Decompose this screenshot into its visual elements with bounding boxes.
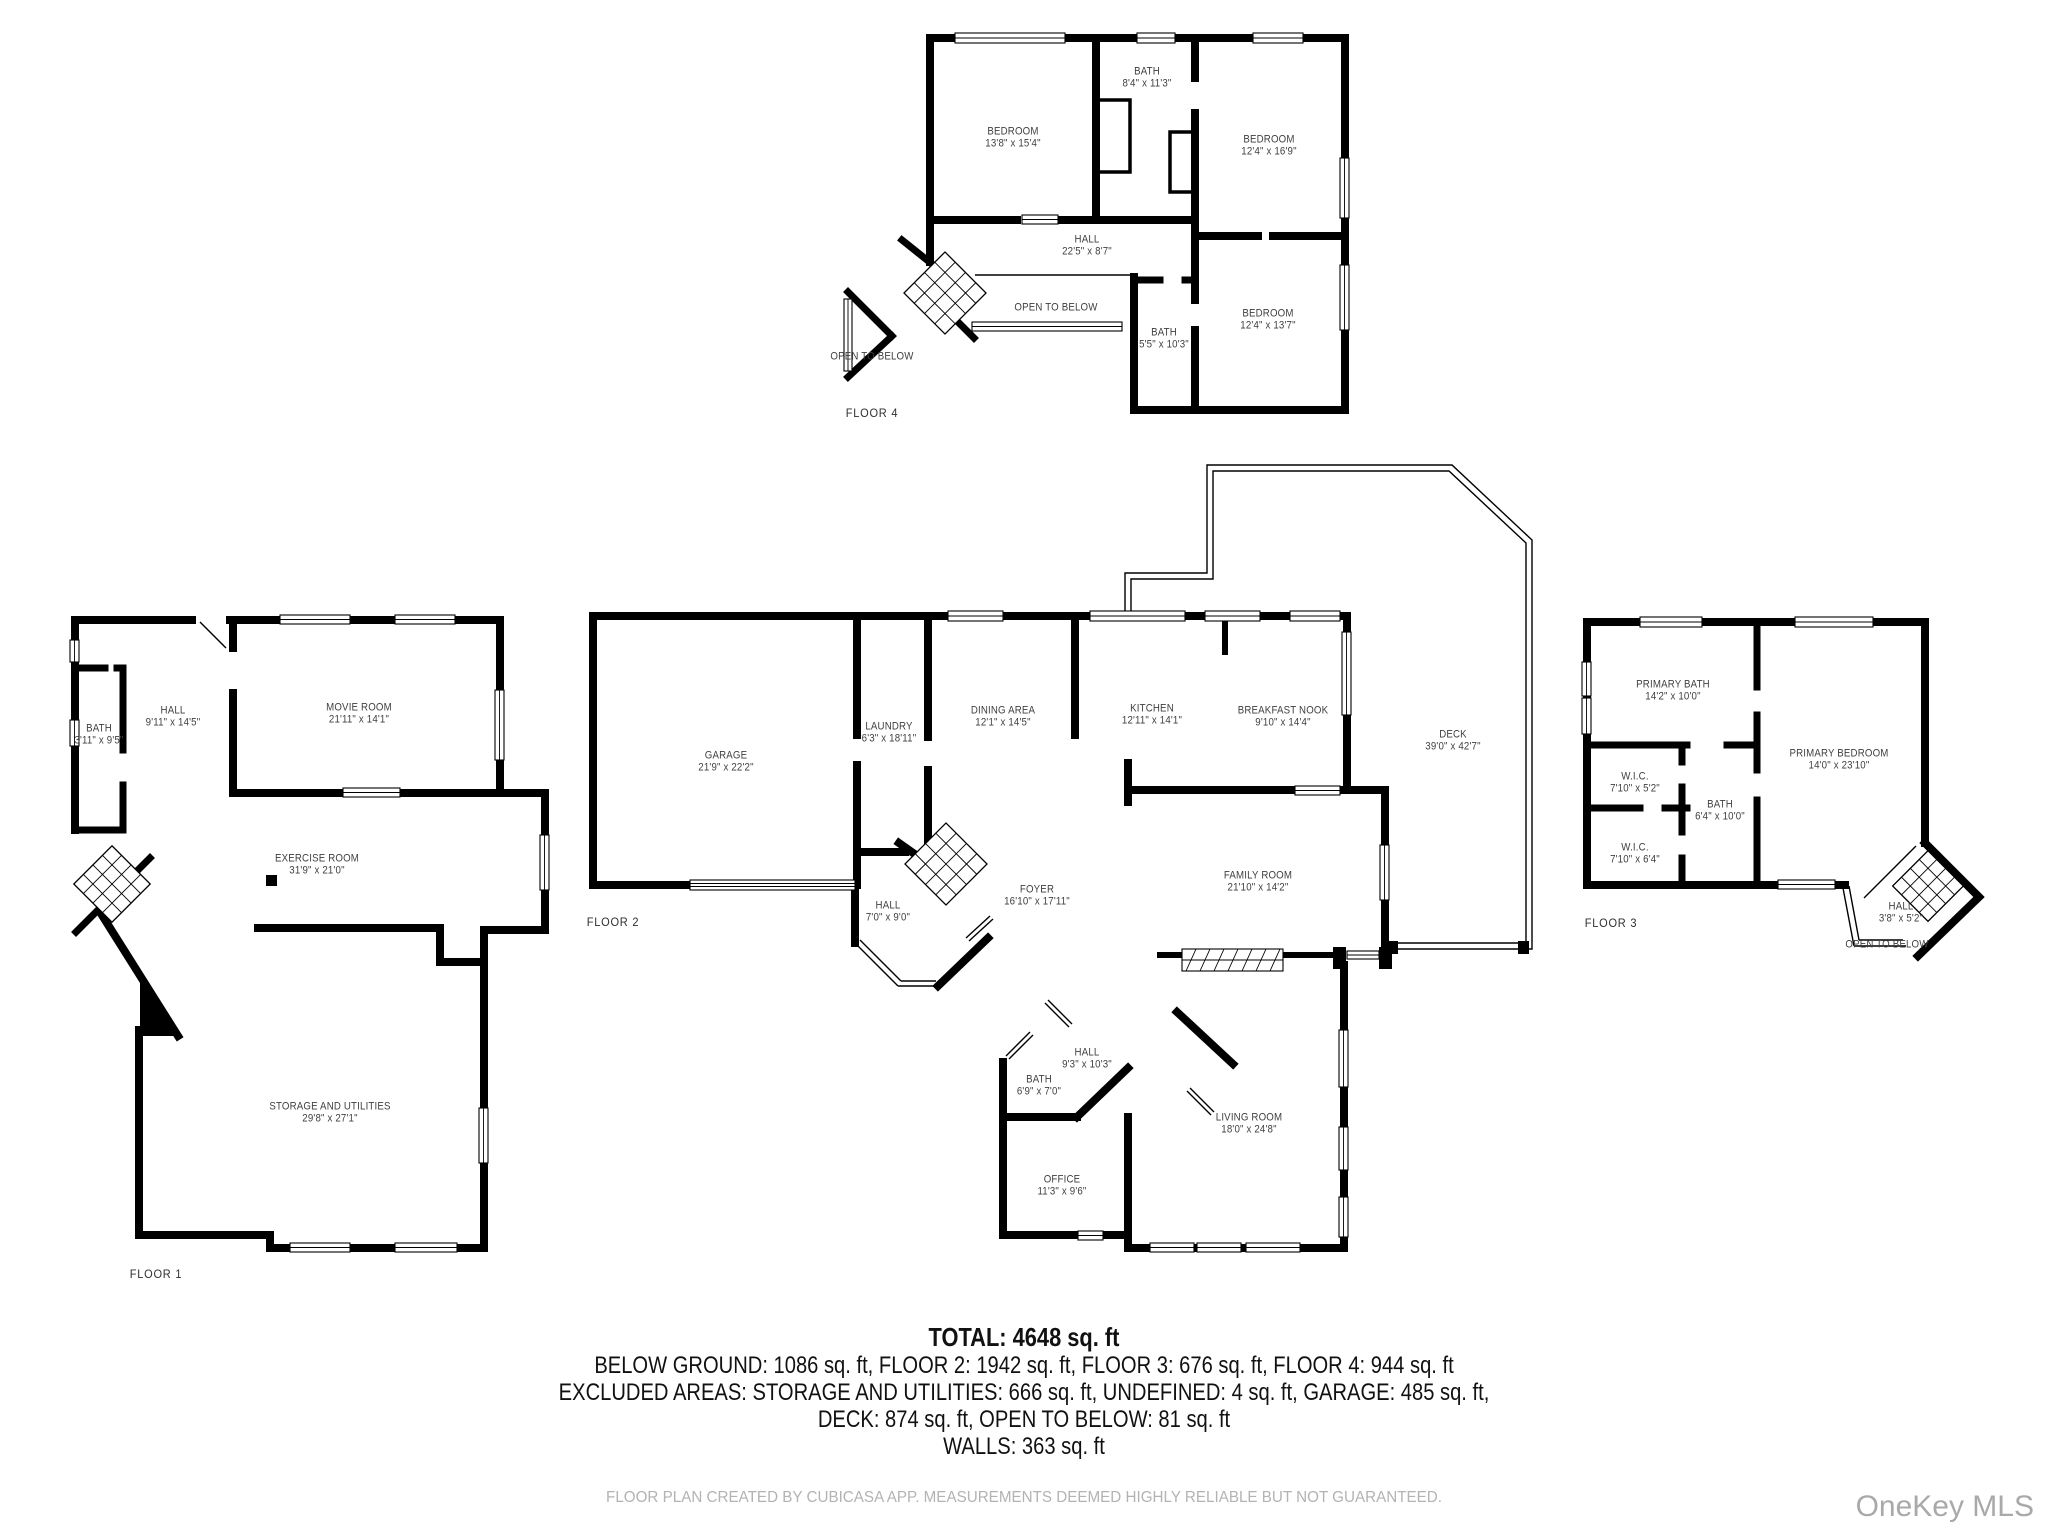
floor2-walls [593,465,1532,1252]
room-name: LAUNDRY [862,722,917,734]
room-label-office: OFFICE11'3" x 9'6" [1037,1175,1086,1198]
room-dims: 12'1" x 14'5" [971,717,1035,729]
room-dims: 18'0" x 24'8" [1216,1124,1282,1136]
room-name: FAMILY ROOM [1224,871,1292,883]
room-name: MOVIE ROOM [326,703,392,715]
room-name: HALL [1879,902,1923,914]
room-label-bath-f1: BATH3'11" x 9'5" [74,724,123,747]
room-label-bedroom-3: BEDROOM12'4" x 13'7" [1240,309,1295,332]
room-label-laundry: LAUNDRY6'3" x 18'11" [862,722,917,745]
room-name: BEDROOM [1241,135,1296,147]
floor-plan-drawing [0,0,2048,1536]
room-dims: 8'4" x 11'3" [1122,78,1171,90]
summary-line-walls: WALLS: 363 sq. ft [164,1433,1884,1460]
room-label-wic-2: W.I.C.7'10" x 6'4" [1610,843,1660,866]
room-name: BATH [1122,67,1171,79]
room-name: HALL [146,706,201,718]
room-name: KITCHEN [1122,704,1182,716]
room-name: BEDROOM [1240,309,1295,321]
room-name: LIVING ROOM [1216,1113,1282,1125]
room-dims: 7'10" x 6'4" [1610,854,1660,866]
room-name: PRIMARY BEDROOM [1789,749,1888,761]
room-label-garage: GARAGE21'9" x 22'2" [698,751,753,774]
room-name: BREAKFAST NOOK [1238,706,1329,718]
room-label-deck: DECK39'0" x 42'7" [1425,730,1480,753]
room-label-primary-bedroom: PRIMARY BEDROOM14'0" x 23'10" [1789,749,1888,772]
room-dims: 6'4" x 10'0" [1695,811,1745,823]
summary-line-deck: DECK: 874 sq. ft, OPEN TO BELOW: 81 sq. … [164,1406,1884,1433]
room-label-hall-f2b: HALL9'3" x 10'3" [1062,1048,1112,1071]
room-label-hall-f4: HALL22'5" x 8'7" [1062,235,1112,258]
area-summary: TOTAL: 4648 sq. ft BELOW GROUND: 1086 sq… [0,1322,2048,1460]
room-dims: 6'3" x 18'11" [862,733,917,745]
floor1-caption: FLOOR 1 [130,1267,182,1281]
room-label-hall-f3: HALL3'8" x 5'2" [1879,902,1923,925]
room-label-open-to-below-f3: OPEN TO BELOW [1845,939,1928,951]
room-name: PRIMARY BATH [1636,680,1710,692]
room-name: OPEN TO BELOW [1014,302,1097,314]
room-name: HALL [866,901,910,913]
summary-line-excluded: EXCLUDED AREAS: STORAGE AND UTILITIES: 6… [164,1379,1884,1406]
room-dims: 5'5" x 10'3" [1139,339,1189,351]
room-name: OPEN TO BELOW [1845,939,1928,951]
room-label-foyer: FOYER16'10" x 17'11" [1004,885,1070,908]
room-name: W.I.C. [1610,772,1660,784]
room-dims: 29'8" x 27'1" [269,1113,390,1125]
room-dims: 9'10" x 14'4" [1238,717,1329,729]
room-label-family-room: FAMILY ROOM21'10" x 14'2" [1224,871,1292,894]
room-dims: 39'0" x 42'7" [1425,741,1480,753]
room-label-bedroom-1: BEDROOM13'8" x 15'4" [985,127,1040,150]
floor-plan-sheet: BATH3'11" x 9'5" HALL9'11" x 14'5" MOVIE… [0,0,2048,1536]
room-name: HALL [1062,1048,1112,1060]
room-label-hall-f2a: HALL7'0" x 9'0" [866,901,910,924]
room-dims: 21'11" x 14'1" [326,714,392,726]
room-name: FOYER [1004,885,1070,897]
room-label-open-to-below-f4b: OPEN TO BELOW [830,351,913,363]
room-name: BATH [1139,328,1189,340]
room-dims: 22'5" x 8'7" [1062,246,1112,258]
room-label-breakfast-nook: BREAKFAST NOOK9'10" x 14'4" [1238,706,1329,729]
summary-line-floors: BELOW GROUND: 1086 sq. ft, FLOOR 2: 1942… [164,1352,1884,1379]
room-dims: 3'8" x 5'2" [1879,913,1923,925]
room-label-kitchen: KITCHEN12'11" x 14'1" [1122,704,1182,727]
room-dims: 14'2" x 10'0" [1636,691,1710,703]
room-name: OPEN TO BELOW [830,351,913,363]
room-label-bath-f4a: BATH8'4" x 11'3" [1122,67,1171,90]
room-name: STORAGE AND UTILITIES [269,1102,390,1114]
room-label-bath-f3: BATH6'4" x 10'0" [1695,800,1745,823]
floor2-caption: FLOOR 2 [587,915,639,929]
floor1-walls [70,615,549,1252]
room-dims: 12'11" x 14'1" [1122,715,1182,727]
room-label-living-room: LIVING ROOM18'0" x 24'8" [1216,1113,1282,1136]
room-name: W.I.C. [1610,843,1660,855]
room-dims: 13'8" x 15'4" [985,138,1040,150]
room-label-dining-area: DINING AREA12'1" x 14'5" [971,706,1035,729]
room-label-movie-room: MOVIE ROOM21'11" x 14'1" [326,703,392,726]
room-name: DINING AREA [971,706,1035,718]
room-dims: 9'3" x 10'3" [1062,1059,1112,1071]
floor3-caption: FLOOR 3 [1585,916,1637,930]
room-dims: 12'4" x 13'7" [1240,320,1295,332]
room-dims: 9'11" x 14'5" [146,717,201,729]
room-dims: 7'0" x 9'0" [866,912,910,924]
floor4-caption: FLOOR 4 [846,406,898,420]
room-name: OFFICE [1037,1175,1086,1187]
room-name: GARAGE [698,751,753,763]
room-dims: 11'3" x 9'6" [1037,1186,1086,1198]
summary-total: TOTAL: 4648 sq. ft [164,1322,1884,1352]
floor2-stairs [905,823,987,905]
room-dims: 21'10" x 14'2" [1224,882,1292,894]
room-name: BATH [1695,800,1745,812]
deck-steps [1182,949,1283,971]
room-name: BATH [74,724,123,736]
room-dims: 7'10" x 5'2" [1610,783,1660,795]
room-name: BATH [1017,1075,1061,1087]
room-name: EXERCISE ROOM [275,854,359,866]
room-label-bath-f2: BATH6'9" x 7'0" [1017,1075,1061,1098]
room-label-storage: STORAGE AND UTILITIES29'8" x 27'1" [269,1102,390,1125]
mls-watermark: OneKey MLS [1856,1490,2034,1524]
room-label-bath-f4b: BATH5'5" x 10'3" [1139,328,1189,351]
room-name: DECK [1425,730,1480,742]
room-label-wic-1: W.I.C.7'10" x 5'2" [1610,772,1660,795]
room-label-exercise-room: EXERCISE ROOM31'9" x 21'0" [275,854,359,877]
room-dims: 31'9" x 21'0" [275,865,359,877]
room-dims: 21'9" x 22'2" [698,762,753,774]
floor4-walls [844,33,1349,410]
disclaimer-text: FLOOR PLAN CREATED BY CUBICASA APP. MEAS… [51,1489,1997,1507]
room-label-primary-bath: PRIMARY BATH14'2" x 10'0" [1636,680,1710,703]
room-dims: 12'4" x 16'9" [1241,146,1296,158]
floor1-stairs [74,846,150,922]
room-dims: 6'9" x 7'0" [1017,1086,1061,1098]
room-dims: 3'11" x 9'5" [74,735,123,747]
room-label-bedroom-2: BEDROOM12'4" x 16'9" [1241,135,1296,158]
room-name: HALL [1062,235,1112,247]
room-label-hall-f1: HALL9'11" x 14'5" [146,706,201,729]
room-dims: 16'10" x 17'11" [1004,896,1070,908]
room-name: BEDROOM [985,127,1040,139]
room-dims: 14'0" x 23'10" [1789,760,1888,772]
room-label-open-to-below-f4a: OPEN TO BELOW [1014,302,1097,314]
